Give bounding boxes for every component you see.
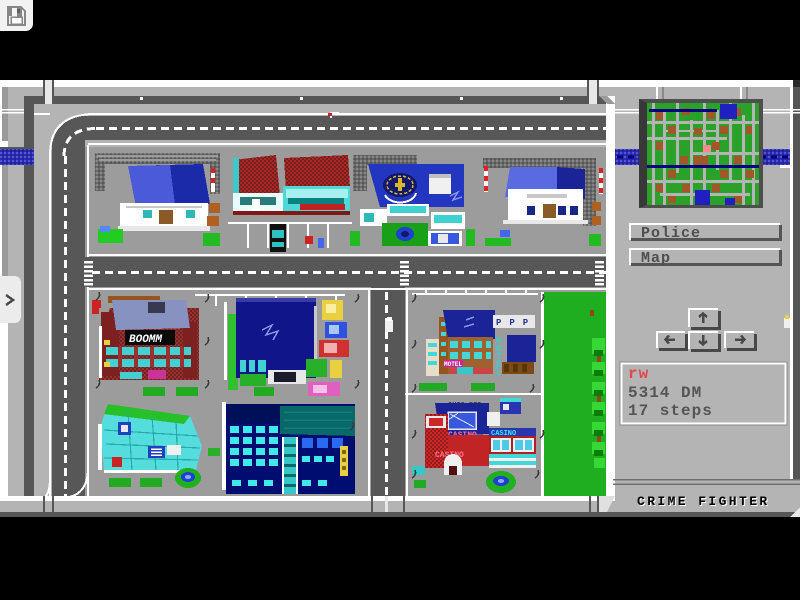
svg-text:5314 DM: 5314 DM xyxy=(628,384,702,402)
svg-text:CRIME FIGHTER: CRIME FIGHTER xyxy=(637,494,770,509)
svg-text:PPP: PPP xyxy=(496,318,536,328)
svg-text:Map: Map xyxy=(641,250,671,267)
svg-text:MOTEL: MOTEL xyxy=(444,361,462,368)
svg-text:L: L xyxy=(496,368,501,378)
svg-text:BOOMM: BOOMM xyxy=(129,334,162,346)
svg-text:17 steps: 17 steps xyxy=(628,402,713,420)
svg-text:rw: rw xyxy=(628,365,649,383)
svg-text:Police: Police xyxy=(641,225,701,242)
